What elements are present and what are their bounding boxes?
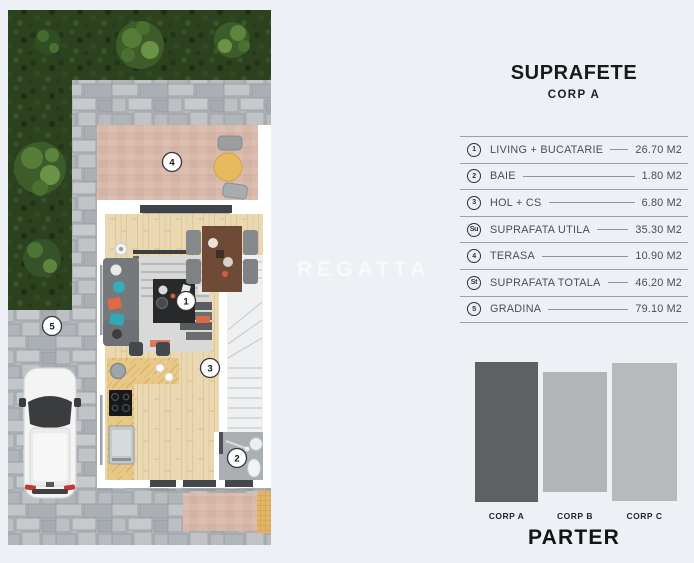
area-row-value: 6.80 M2 bbox=[642, 197, 682, 209]
area-row-value: 1.80 M2 bbox=[642, 170, 682, 182]
rear-windows bbox=[150, 480, 253, 491]
area-row-suprafata-utila: Su SUPRAFATA UTILA 35.30 M2 bbox=[460, 216, 688, 243]
svg-text:3: 3 bbox=[207, 364, 212, 375]
area-row-label: LIVING + BUCATARIE bbox=[490, 144, 603, 156]
sofa bbox=[103, 258, 139, 346]
panel-subtitle: CORP A bbox=[460, 89, 688, 101]
leader-line bbox=[523, 176, 635, 177]
row-number-badge: 4 bbox=[467, 249, 481, 263]
corp-b-column: CORP B bbox=[543, 362, 607, 521]
dining-set bbox=[186, 226, 258, 292]
back-patio bbox=[183, 493, 257, 531]
terrace bbox=[97, 125, 271, 207]
bathroom-sink bbox=[250, 438, 263, 451]
bathroom-door bbox=[219, 432, 223, 454]
floor-label: PARTER bbox=[460, 526, 688, 550]
leader-line bbox=[548, 309, 628, 310]
area-row-label: HOL + CS bbox=[490, 197, 542, 209]
plan-badge-living: 1 bbox=[177, 292, 196, 311]
area-row-baie: 2 BAIE 1.80 M2 bbox=[460, 163, 688, 190]
row-number-badge: Su bbox=[467, 223, 481, 237]
sliding-door bbox=[140, 205, 232, 213]
corp-b-bar bbox=[543, 372, 607, 492]
area-row-value: 26.70 M2 bbox=[635, 144, 682, 156]
areas-panel: SUPRAFETE CORP A 1 LIVING + BUCATARIE 26… bbox=[460, 0, 688, 563]
bar-stool bbox=[129, 342, 143, 356]
corp-legend: CORP A CORP B CORP C bbox=[475, 362, 677, 521]
page: 4 1 3 2 5 REGATTA SUPRAFETE CORP A bbox=[0, 0, 694, 563]
area-row-gradina: 5 GRADINA 79.10 M2 bbox=[460, 296, 688, 324]
svg-text:4: 4 bbox=[169, 158, 175, 169]
plan-badge-terasa: 4 bbox=[163, 153, 182, 172]
row-number-badge: 5 bbox=[467, 302, 481, 316]
area-row-terasa: 4 TERASA 10.90 M2 bbox=[460, 242, 688, 269]
corp-c-bar bbox=[612, 363, 677, 501]
corp-c-label: CORP C bbox=[627, 511, 663, 521]
corp-a-bar bbox=[475, 362, 538, 502]
cooktop bbox=[109, 390, 132, 416]
area-row-living: 1 LIVING + BUCATARIE 26.70 M2 bbox=[460, 136, 688, 163]
corp-a-label: CORP A bbox=[489, 511, 525, 521]
svg-text:2: 2 bbox=[234, 454, 239, 465]
watermark: REGATTA bbox=[297, 258, 417, 282]
row-number-badge: 2 bbox=[467, 169, 481, 183]
row-number-badge: St bbox=[467, 276, 481, 290]
panel-title: SUPRAFETE bbox=[460, 62, 688, 85]
corp-c-column: CORP C bbox=[612, 362, 677, 521]
bar-stool bbox=[156, 342, 170, 356]
row-number-badge: 1 bbox=[467, 143, 481, 157]
area-table: 1 LIVING + BUCATARIE 26.70 M2 2 BAIE 1.8… bbox=[460, 136, 688, 323]
area-row-label: BAIE bbox=[490, 170, 516, 182]
area-row-label: TERASA bbox=[490, 250, 535, 262]
area-row-suprafata-totala: St SUPRAFATA TOTALA 46.20 M2 bbox=[460, 269, 688, 296]
wood-deck bbox=[257, 491, 271, 533]
area-row-value: 46.20 M2 bbox=[635, 277, 682, 289]
car bbox=[19, 368, 81, 498]
area-row-label: SUPRAFATA UTILA bbox=[490, 224, 590, 236]
leader-line bbox=[542, 256, 628, 257]
media-console bbox=[133, 250, 193, 254]
plan-badge-hol: 3 bbox=[201, 359, 220, 378]
area-row-value: 10.90 M2 bbox=[635, 250, 682, 262]
plan-badge-gradina: 5 bbox=[43, 317, 62, 336]
corp-b-label: CORP B bbox=[557, 511, 593, 521]
leader-line bbox=[610, 149, 628, 150]
building-corp-a bbox=[97, 200, 271, 491]
leader-line bbox=[597, 229, 628, 230]
plan-badge-baie: 2 bbox=[228, 449, 247, 468]
area-row-value: 35.30 M2 bbox=[635, 224, 682, 236]
leader-line bbox=[549, 202, 635, 203]
fridge bbox=[109, 426, 134, 464]
area-row-label: SUPRAFATA TOTALA bbox=[490, 277, 601, 289]
area-row-hol: 3 HOL + CS 6.80 M2 bbox=[460, 189, 688, 216]
row-number-badge: 3 bbox=[467, 196, 481, 210]
svg-text:1: 1 bbox=[183, 297, 189, 308]
corp-a-column: CORP A bbox=[475, 362, 538, 521]
area-row-label: GRADINA bbox=[490, 303, 541, 315]
leader-line bbox=[608, 282, 629, 283]
svg-text:5: 5 bbox=[49, 322, 55, 333]
area-row-value: 79.10 M2 bbox=[635, 303, 682, 315]
toilet bbox=[248, 459, 261, 477]
kitchen-sink bbox=[111, 364, 126, 379]
